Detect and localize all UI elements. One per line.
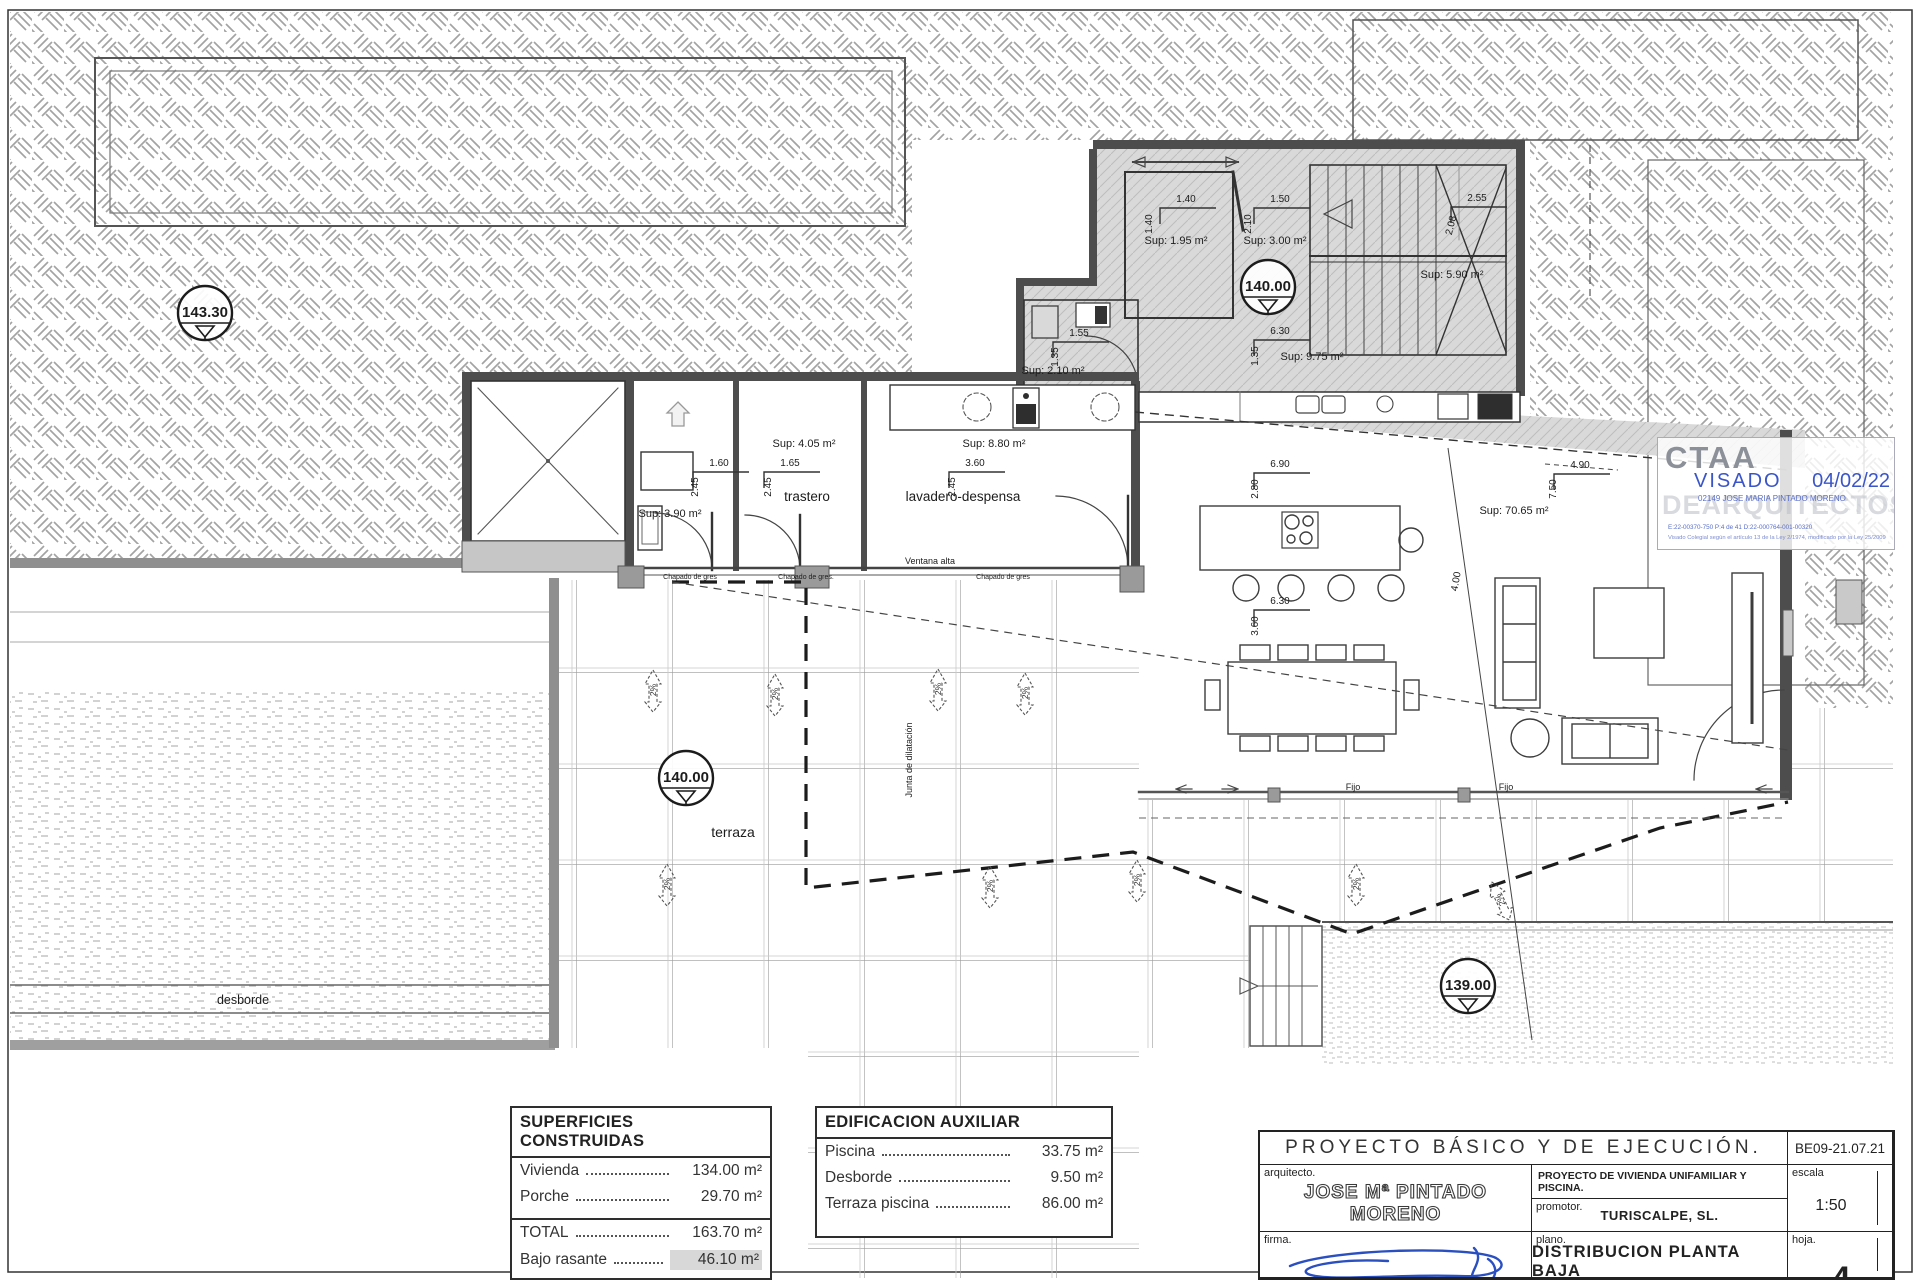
table-superficies-title: SUPERFICIES CONSTRUIDAS	[512, 1108, 770, 1158]
plan-label: 2.45	[690, 477, 701, 497]
plan-label: 1.35	[1250, 346, 1261, 366]
visado-refs: E:22-00370-750 P:4 de 41 D:22-000764-001…	[1668, 524, 1890, 531]
table-row: TOTAL163.70 m²	[520, 1224, 762, 1250]
arquitecto-name: JOSE Mª PINTADO MORENO	[1260, 1182, 1531, 1226]
row-value: 46.10 m²	[670, 1250, 762, 1270]
floor-plan: Sup: 1.95 m²1.401.40Sup: 3.00 m²1.502.10…	[0, 0, 1920, 1280]
visado-collegiate: 02149 JOSE MARIA PINTADO MORENO	[1698, 494, 1846, 503]
plan-label: 1.60	[709, 458, 729, 469]
plan-label: trastero	[784, 489, 830, 504]
plan-label: 7.50	[1548, 479, 1559, 499]
row-label: Bajo rasante	[520, 1251, 607, 1269]
plano-label: plano.	[1536, 1234, 1566, 1246]
table-row: Desborde9.50 m²	[825, 1169, 1103, 1195]
plan-label: Fijo	[1499, 782, 1514, 792]
table-edificacion-title: EDIFICACION AUXILIAR	[817, 1108, 1111, 1139]
row-label: TOTAL	[520, 1224, 569, 1242]
plan-label: desborde	[217, 993, 269, 1007]
plan-label: terraza	[711, 824, 755, 840]
dotted-leader	[614, 1262, 663, 1264]
plan-label: Chapado de gres.	[778, 574, 834, 581]
elevation-marker: 139.00	[1441, 959, 1495, 1013]
row-value: 33.75 m²	[1017, 1143, 1103, 1161]
dotted-leader	[576, 1199, 669, 1201]
plano-name: DISTRIBUCION PLANTA BAJA	[1532, 1243, 1787, 1279]
table-row: Piscina33.75 m²	[825, 1143, 1103, 1169]
visado-date: 04/02/22	[1812, 470, 1890, 493]
plan-label: Sup: 9.75 m²	[1281, 351, 1344, 363]
plan-label: 2.55	[1467, 193, 1487, 204]
table-row: Bajo rasante46.10 m²	[520, 1250, 762, 1276]
dotted-leader	[899, 1180, 1010, 1182]
table-row: Porche29.70 m²	[520, 1188, 762, 1214]
table-row: Terraza piscina86.00 m²	[825, 1195, 1103, 1221]
plan-label: Ventana alta	[905, 556, 955, 566]
row-value: 163.70 m²	[676, 1224, 762, 1242]
courtyard-skylight	[462, 381, 625, 572]
hoja-label: hoja.	[1792, 1234, 1816, 1246]
plan-label: Sup: 2.10 m²	[1022, 365, 1085, 377]
svg-text:2%: 2%	[1132, 873, 1142, 886]
hoja-number: 4	[1832, 1260, 1851, 1278]
dotted-leader	[576, 1235, 669, 1237]
row-label: Terraza piscina	[825, 1195, 929, 1213]
plan-label: 3.60	[1250, 616, 1261, 636]
signature	[1278, 1244, 1518, 1278]
plan-label: 1.55	[1069, 328, 1089, 339]
table-edificacion: EDIFICACION AUXILIAR Piscina33.75 m²Desb…	[815, 1106, 1113, 1238]
row-value: 86.00 m²	[1017, 1195, 1103, 1213]
plan-label: Sup: 4.05 m²	[773, 438, 836, 450]
row-label: Desborde	[825, 1169, 892, 1187]
plan-label: 4.90	[1570, 460, 1590, 471]
project-description: PROYECTO DE VIVIENDA UNIFAMILIAR Y PISCI…	[1532, 1165, 1787, 1199]
svg-text:2%: 2%	[985, 879, 995, 892]
visado-word: VISADO	[1694, 470, 1782, 493]
plan-label: 3.60	[965, 458, 985, 469]
svg-text:2%: 2%	[662, 877, 672, 890]
svg-text:2%: 2%	[648, 683, 658, 696]
plan-label: Sup: 5.90 m²	[1421, 269, 1484, 281]
row-value: 29.70 m²	[676, 1188, 762, 1206]
dotted-leader	[936, 1206, 1010, 1208]
plan-label: 1.50	[1270, 194, 1290, 205]
plan-label: 6.30	[1270, 596, 1290, 607]
table-row: Vivienda134.00 m²	[520, 1162, 762, 1188]
plan-label: Junta de dilatación	[904, 722, 914, 797]
plan-label: 2.45	[763, 477, 774, 497]
svg-text:2%: 2%	[933, 682, 943, 695]
plan-label: 1.40	[1176, 194, 1196, 205]
plan-label: 1.35	[1050, 347, 1061, 367]
plan-label: lavadero-despensa	[906, 489, 1021, 504]
svg-text:139.00: 139.00	[1445, 977, 1491, 994]
visado-stamp: DEARQUITECTOS CTAA VISADO 04/02/22 02149…	[1657, 437, 1895, 550]
plan-label: Chapado de gres	[663, 574, 717, 581]
promotor-name: TURISCALPE, SL.	[1600, 1208, 1718, 1223]
svg-text:140.00: 140.00	[663, 769, 709, 786]
elevation-marker: 140.00	[659, 751, 713, 805]
plan-label: Sup: 70.65 m²	[1479, 505, 1548, 517]
row-value: 134.00 m²	[676, 1162, 762, 1180]
plan-label: 6.90	[1270, 459, 1290, 470]
plan-label: Sup: 3.00 m²	[1244, 235, 1307, 247]
plan-label: 2.80	[1250, 479, 1261, 499]
plan-label: 2.10	[1243, 214, 1254, 234]
svg-text:140.00: 140.00	[1245, 278, 1291, 295]
project-code: BE09-21.07.21	[1788, 1132, 1893, 1165]
plan-label: 1.40	[1144, 214, 1155, 234]
plan-label: Fijo	[1346, 782, 1361, 792]
row-label: Piscina	[825, 1143, 875, 1161]
plan-label: Sup: 8.80 m²	[963, 438, 1026, 450]
plan-label: Sup: 3.90 m²	[639, 508, 702, 520]
plan-label: Chapado de gres	[976, 574, 1030, 581]
project-title: PROYECTO BÁSICO Y DE EJECUCIÓN.	[1260, 1132, 1788, 1165]
escala-value: 1:50	[1788, 1197, 1874, 1215]
stone-area	[1240, 922, 1893, 1066]
escala-label: escala	[1792, 1167, 1824, 1179]
promotor-label: promotor.	[1536, 1201, 1582, 1213]
elevation-marker: 143.30	[178, 286, 232, 340]
dotted-leader	[882, 1154, 1010, 1156]
plan-label: 6.30	[1270, 326, 1290, 337]
pool-area	[10, 558, 555, 1050]
dotted-leader	[586, 1173, 669, 1175]
elevation-marker: 140.00	[1241, 260, 1295, 314]
svg-text:2%: 2%	[770, 687, 780, 700]
title-block: PROYECTO BÁSICO Y DE EJECUCIÓN. BE09-21.…	[1258, 1130, 1895, 1280]
plan-label: Sup: 1.95 m²	[1145, 235, 1208, 247]
row-label: Vivienda	[520, 1162, 579, 1180]
row-label: Porche	[520, 1188, 569, 1206]
svg-text:2%: 2%	[1351, 877, 1361, 890]
drawing-sheet: Sup: 1.95 m²1.401.40Sup: 3.00 m²1.502.10…	[0, 0, 1920, 1280]
plan-label: 1.65	[780, 458, 800, 469]
row-value: 9.50 m²	[1017, 1169, 1103, 1187]
svg-text:143.30: 143.30	[182, 304, 228, 321]
visado-legal: Visado Colegial según el artículo 13 de …	[1668, 535, 1890, 541]
table-separator	[512, 1218, 770, 1220]
arquitecto-label: arquitecto.	[1264, 1167, 1315, 1179]
svg-text:2%: 2%	[1020, 686, 1030, 699]
exterior-stairs	[1240, 926, 1322, 1046]
table-superficies: SUPERFICIES CONSTRUIDAS Vivienda134.00 m…	[510, 1106, 772, 1280]
